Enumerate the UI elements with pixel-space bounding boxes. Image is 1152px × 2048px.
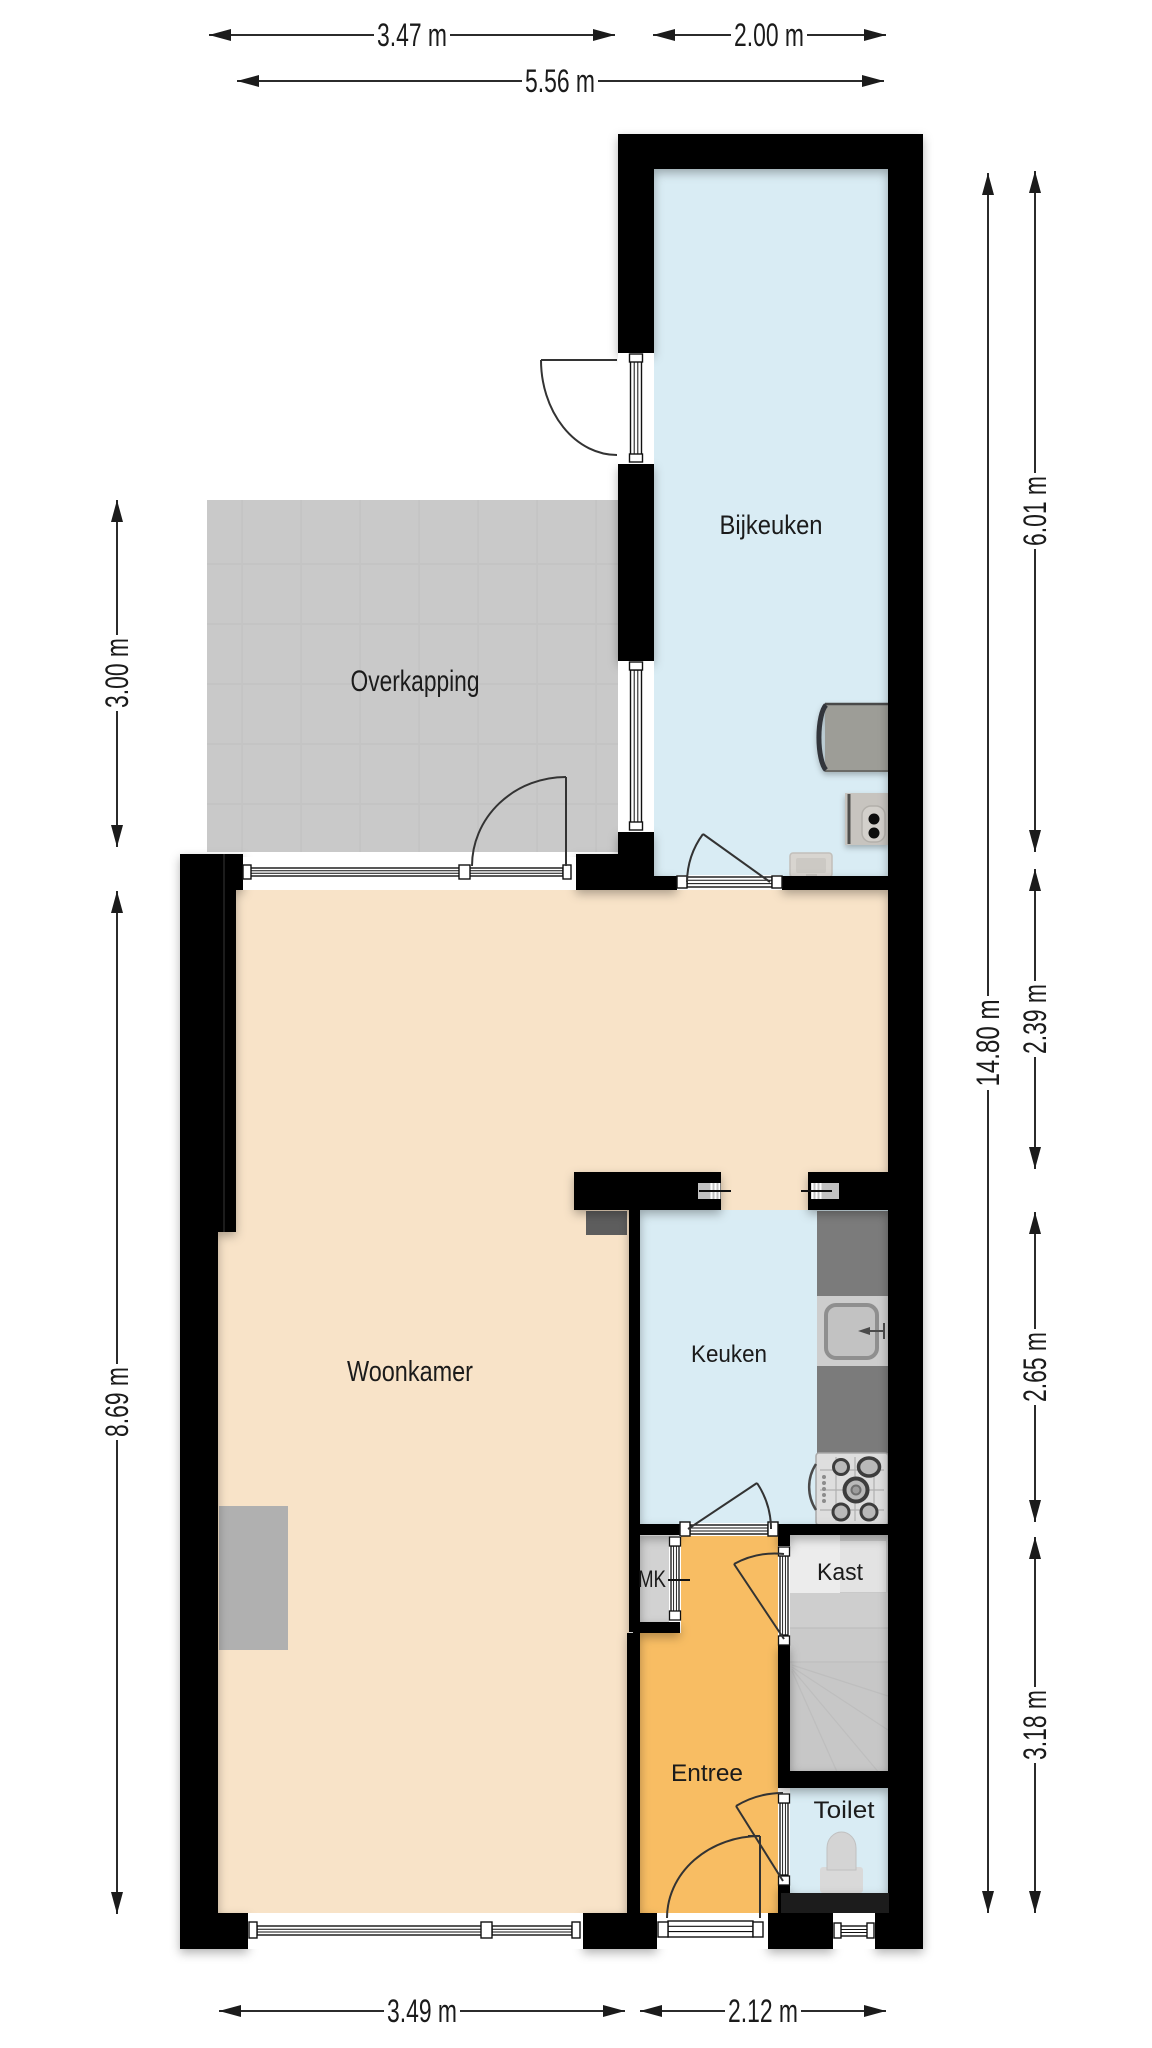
svg-text:5.56 m: 5.56 m (525, 63, 595, 99)
svg-text:Entree: Entree (671, 1760, 743, 1787)
svg-text:Keuken: Keuken (691, 1341, 767, 1368)
svg-text:2.39 m: 2.39 m (1017, 984, 1053, 1054)
svg-text:Bijkeuken: Bijkeuken (720, 510, 823, 540)
svg-text:Woonkamer: Woonkamer (347, 1356, 473, 1388)
svg-text:14.80 m: 14.80 m (970, 1000, 1006, 1087)
svg-text:6.01 m: 6.01 m (1017, 476, 1053, 546)
svg-text:2.00 m: 2.00 m (734, 17, 804, 53)
svg-text:3.49 m: 3.49 m (387, 1993, 457, 2029)
svg-text:Kast: Kast (817, 1559, 863, 1586)
svg-text:3.18 m: 3.18 m (1017, 1690, 1053, 1760)
svg-text:2.12 m: 2.12 m (728, 1993, 798, 2029)
svg-text:Overkapping: Overkapping (351, 665, 480, 698)
svg-text:MK: MK (638, 1566, 666, 1593)
svg-text:8.69 m: 8.69 m (99, 1367, 135, 1437)
svg-text:3.00 m: 3.00 m (99, 638, 135, 708)
svg-text:2.65 m: 2.65 m (1017, 1332, 1053, 1402)
svg-text:Toilet: Toilet (814, 1797, 875, 1824)
svg-text:3.47 m: 3.47 m (377, 17, 447, 53)
